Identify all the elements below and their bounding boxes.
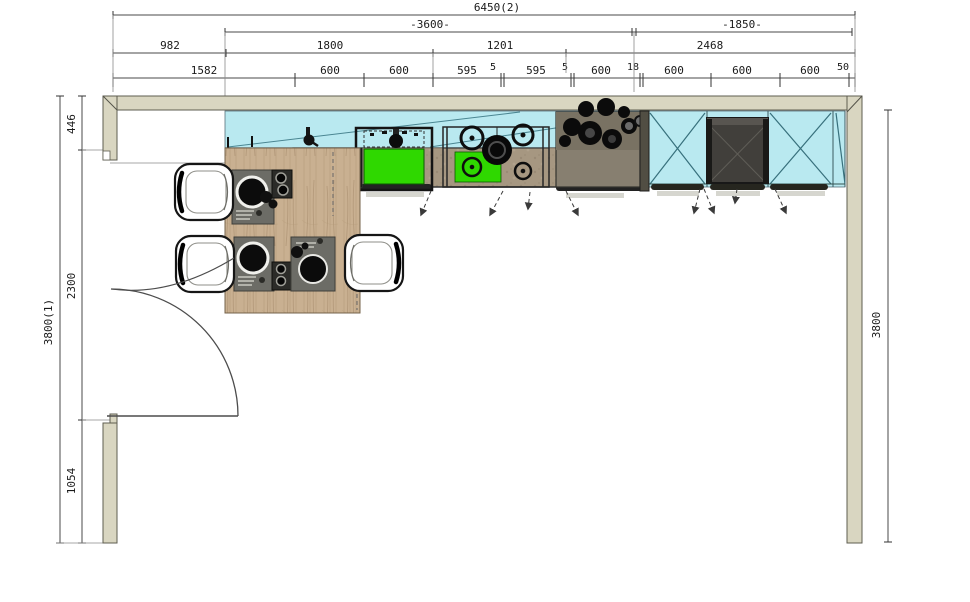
left-wall-lower <box>103 423 117 543</box>
dim-seg-3: 595 <box>457 64 477 77</box>
dim-left-seg-0: 446 <box>65 114 78 134</box>
island-burner-2 <box>272 262 291 290</box>
dim-top-mid-0: -3600- <box>410 18 450 31</box>
refrigerator <box>707 118 768 183</box>
dim-top-group-0: 982 <box>160 39 180 52</box>
right-dimension-chain: 3800 <box>870 110 892 542</box>
right-wall <box>847 96 862 543</box>
pots-station <box>556 98 649 191</box>
top-dimension-chain: 6450(2) -3600- -1850- 982 1800 1201 2468 <box>113 1 855 108</box>
island-burner-1 <box>272 170 292 198</box>
placemat-3 <box>291 237 335 291</box>
pot-icon <box>482 135 512 165</box>
dim-seg-8: 18 <box>627 62 639 73</box>
dim-seg-6: 5 <box>562 62 568 73</box>
dim-seg-11: 600 <box>800 64 820 77</box>
chair-3 <box>345 235 403 291</box>
island <box>225 148 360 313</box>
dim-left-seg-1: 2300 <box>65 273 78 300</box>
chair-2 <box>176 236 234 292</box>
dim-seg-1: 600 <box>320 64 340 77</box>
plate-icon <box>237 177 267 207</box>
dim-top-overall: 6450(2) <box>474 1 520 14</box>
chair-1 <box>175 164 233 220</box>
dim-seg-0: 1582 <box>191 64 218 77</box>
dim-seg-7: 600 <box>591 64 611 77</box>
dim-seg-9: 600 <box>664 64 684 77</box>
dim-seg-2: 600 <box>389 64 409 77</box>
sink-basin <box>364 149 424 184</box>
dim-top-mid-1: -1850- <box>722 18 762 31</box>
dim-top-group-1: 1800 <box>317 39 344 52</box>
dim-top-group-2: 1201 <box>487 39 514 52</box>
dim-right-overall: 3800 <box>870 312 883 339</box>
dim-seg-12: 50 <box>837 62 849 73</box>
floor-plan-canvas: 6450(2) -3600- -1850- 982 1800 1201 2468 <box>0 0 970 602</box>
dim-left-seg-2: 1054 <box>65 467 78 494</box>
dim-left-overall: 3800(1) <box>42 299 55 345</box>
dim-top-group-3: 2468 <box>697 39 724 52</box>
placemat-1 <box>232 170 278 224</box>
top-wall <box>103 96 862 110</box>
placemat-2 <box>234 237 274 291</box>
cabinet-plinths <box>651 184 828 196</box>
floor-plan-svg: 6450(2) -3600- -1850- 982 1800 1201 2468 <box>0 0 970 602</box>
plate-icon <box>238 243 268 273</box>
dim-seg-5: 595 <box>526 64 546 77</box>
dim-seg-10: 600 <box>732 64 752 77</box>
pan-icon <box>299 255 327 283</box>
left-wall-upper <box>103 96 117 160</box>
dim-seg-4: 5 <box>490 62 496 73</box>
